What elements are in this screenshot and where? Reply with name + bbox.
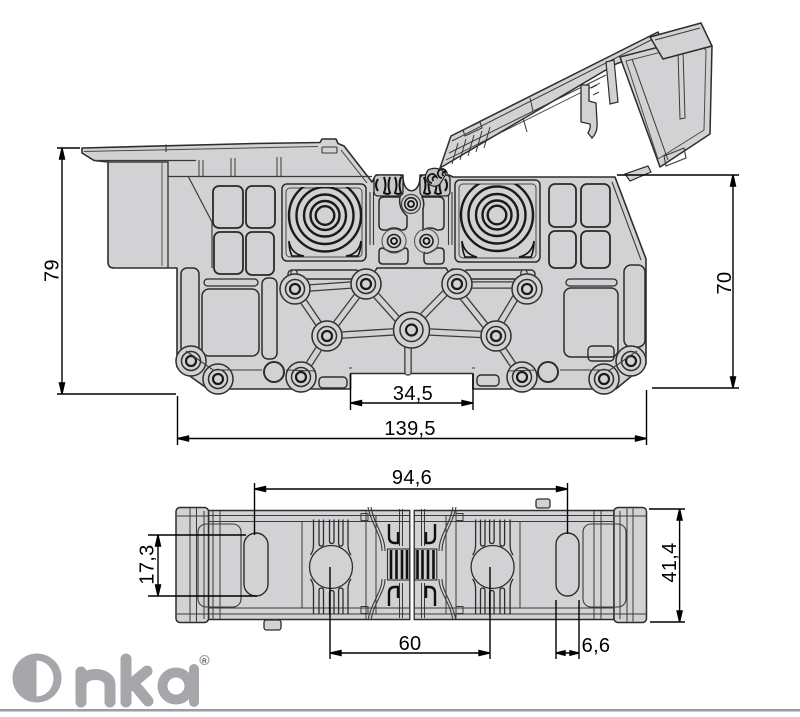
svg-text:41,4: 41,4: [659, 542, 681, 582]
svg-text:34,5: 34,5: [393, 383, 433, 405]
svg-text:6,6: 6,6: [582, 635, 611, 657]
svg-text:70: 70: [714, 272, 736, 295]
svg-text:79: 79: [42, 259, 64, 282]
svg-text:60: 60: [399, 633, 422, 655]
svg-text:R: R: [202, 658, 207, 665]
svg-text:17,3: 17,3: [137, 544, 159, 584]
svg-text:139,5: 139,5: [384, 418, 436, 440]
svg-text:94,6: 94,6: [392, 467, 432, 489]
